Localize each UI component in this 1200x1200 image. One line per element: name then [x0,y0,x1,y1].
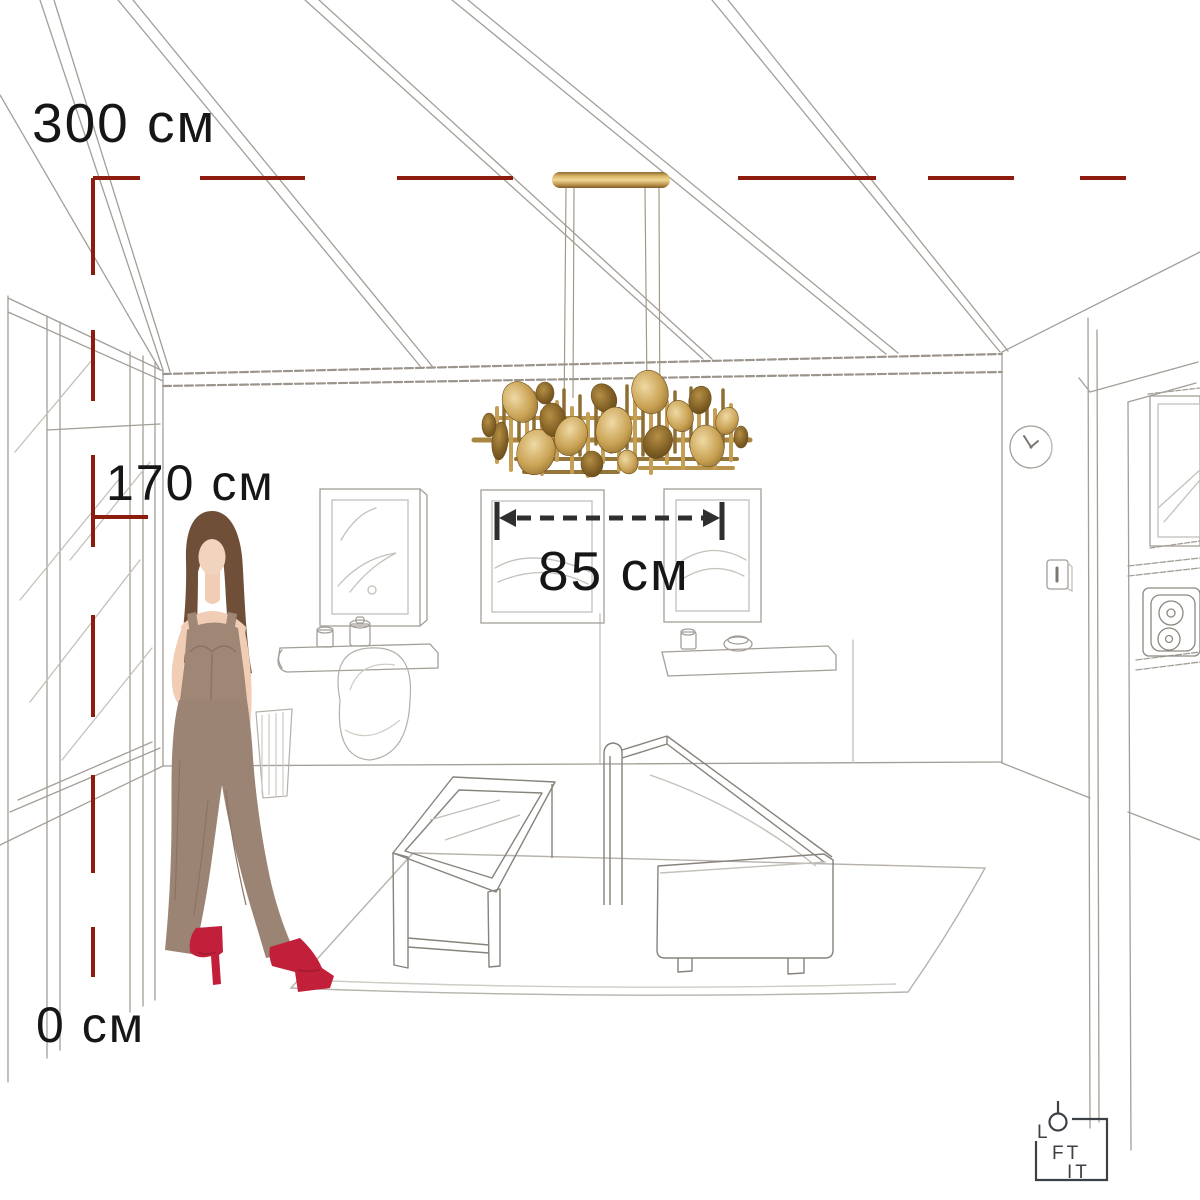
right-ceiling-edge [1002,252,1200,352]
right-doorway [1079,318,1198,1150]
speaker-icon [1143,588,1200,656]
loftit-logo: L FT IT [1036,1101,1107,1183]
fixture-width-label: 85 см [538,544,690,599]
sofa [604,736,833,974]
logo-letter-l: L [1037,1122,1051,1143]
wall-frame-left [320,489,427,626]
back-wall-top-edge [163,354,1002,386]
woman-figure [165,511,334,992]
wall-clock-icon [1010,426,1052,468]
fixture-clearance-label: 170 см [106,458,275,508]
far-room-ledges [1128,558,1200,670]
left-window-wall [0,296,163,1082]
right-shelf [662,629,836,676]
logo-letters-it: IT [1067,1162,1090,1183]
far-room-window [1148,388,1200,548]
ceiling-canopy [552,172,670,188]
wall-seam [600,614,853,763]
bustier-top [180,622,247,713]
ceiling-beams [0,0,1008,372]
rug [291,853,985,995]
boot-right [269,938,334,992]
light-switch-icon [1047,560,1072,591]
floor-level-label: 0 см [36,1000,145,1050]
floor-line-right [1002,763,1200,840]
scene: L FT IT 300 см 170 см 0 см 85 см [0,0,1200,1200]
boot-left [190,926,223,985]
ceiling-height-label: 300 см [32,96,216,151]
face [199,539,226,575]
coffee-table [393,777,555,968]
window-reflections [15,360,152,760]
logo-pendant-icon [1050,1114,1067,1131]
left-shelf [278,617,438,672]
width-dimension-arrow [497,502,722,540]
logo-letters-ft: FT [1052,1143,1081,1164]
chandelier [474,172,750,479]
